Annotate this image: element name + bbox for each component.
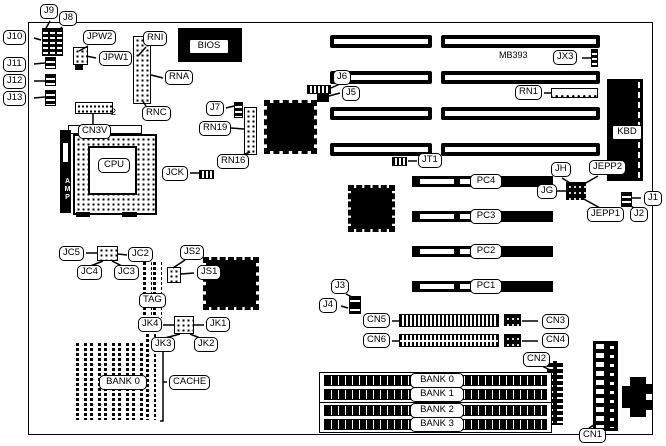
label-jpw1: JPW1 [99,51,132,66]
label-jepp1: JEPP1 [587,207,624,222]
label-j4: J4 [319,298,337,313]
label-j2: J2 [630,207,648,222]
label-cn1: CN1 [579,428,606,443]
label-rna: RNA [165,70,193,85]
label-j5: J5 [342,86,360,101]
label-bank2: BANK 2 [410,403,464,418]
label-jg: JG [537,184,557,199]
motherboard-diagram: BIOS 2 AMP CPU KBD [0,0,666,446]
label-cache: CACHE [169,375,210,390]
label-jx3: JX3 [553,50,577,65]
label-rni: RNI [143,31,167,46]
label-pc1: PC1 [470,279,502,294]
label-cn2: CN2 [523,352,550,367]
label-j8: J8 [59,11,77,26]
label-jpw2: JPW2 [83,30,116,45]
label-j13: J13 [3,91,26,106]
board-model-text: MB393 [499,50,528,60]
label-jk4: JK4 [138,317,162,332]
label-jck: JCK [162,166,188,181]
label-rn1: RN1 [515,85,542,100]
label-js2: JS2 [180,245,204,260]
label-j6: J6 [333,70,351,85]
label-jt1: JT1 [418,153,442,168]
label-js1: JS1 [197,265,221,280]
label-j9: J9 [40,4,58,19]
label-jk2: JK2 [194,337,218,352]
cpu-label: CPU [98,158,130,173]
label-jk1: JK1 [206,317,230,332]
label-j11: J11 [3,57,26,72]
label-jc3: JC3 [114,265,139,280]
label-j12: J12 [3,74,26,89]
label-cn3: CN3 [542,314,569,329]
label-jc2: JC2 [128,247,153,262]
label-bank3: BANK 3 [410,417,464,432]
label-bank0: BANK 0 [410,373,464,388]
label-bank1: BANK 1 [410,387,464,402]
label-pc2: PC2 [470,244,502,259]
label-tag: TAG [139,293,166,308]
label-jc4: JC4 [77,265,102,280]
label-cn4: CN4 [542,333,569,348]
label-cn3v: CN3V [78,124,111,139]
cn3v-pin2-text: 2 [111,107,116,117]
label-cn6: CN6 [363,333,390,348]
label-pc4: PC4 [470,174,502,189]
label-j1: J1 [644,191,662,206]
label-rn16: RN16 [217,154,249,169]
label-rn19: RN19 [199,121,231,136]
label-jepp2: JEPP2 [589,160,626,175]
label-j7: J7 [206,101,224,116]
label-j10: J10 [3,30,26,45]
label-rnc: RNC [142,106,171,121]
label-pc3: PC3 [470,209,502,224]
kbd-connector-label: KBD [612,125,642,140]
label-jk3: JK3 [151,337,175,352]
label-cache-bank0: BANK 0 [99,375,147,390]
label-jc5: JC5 [59,246,84,261]
label-j3: J3 [331,279,349,294]
bios-chip-label: BIOS [189,39,229,54]
label-jh: JH [551,162,571,177]
label-cn5: CN5 [363,313,390,328]
